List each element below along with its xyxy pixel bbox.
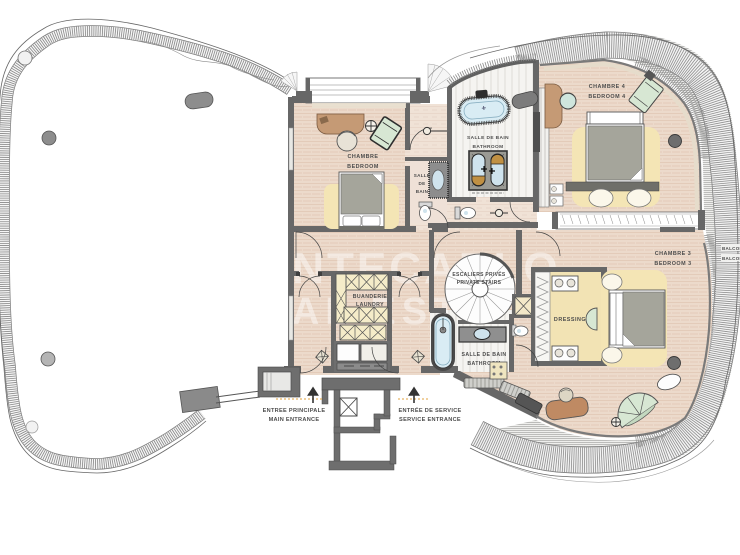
svg-text:ESCALIERS PRIVÉS: ESCALIERS PRIVÉS <box>452 270 506 278</box>
svg-text:BATHROOM: BATHROOM <box>472 144 503 150</box>
svg-text:BEDROOM 3: BEDROOM 3 <box>654 261 691 267</box>
svg-text:BALCONY: BALCONY <box>722 256 740 261</box>
svg-text:SALLE DE BAIN: SALLE DE BAIN <box>462 352 507 358</box>
svg-text:BUANDERIE: BUANDERIE <box>353 294 388 300</box>
svg-text:BEDROOM 4: BEDROOM 4 <box>588 94 625 100</box>
svg-text:CHAMBRE 3: CHAMBRE 3 <box>655 251 692 257</box>
svg-text:DE: DE <box>419 181 426 186</box>
svg-text:BEDROOM: BEDROOM <box>347 164 379 170</box>
svg-text:SALLE DE BAIN: SALLE DE BAIN <box>467 135 509 141</box>
svg-text:ENTRÉE DE SERVICE: ENTRÉE DE SERVICE <box>398 406 461 414</box>
svg-text:BAIN: BAIN <box>416 189 429 194</box>
svg-text:BALCON: BALCON <box>722 246 740 251</box>
svg-text:DRESSING: DRESSING <box>554 317 586 323</box>
svg-text:SERVICE ENTRANCE: SERVICE ENTRANCE <box>399 417 461 423</box>
svg-text:CHAMBRE: CHAMBRE <box>347 154 378 160</box>
svg-text:MAIN ENTRANCE: MAIN ENTRANCE <box>269 417 320 423</box>
svg-text:SALLE: SALLE <box>414 173 431 178</box>
svg-text:PRIVATE STAIRS: PRIVATE STAIRS <box>457 280 502 286</box>
svg-text:ENTREE PRINCIPALE: ENTREE PRINCIPALE <box>263 408 326 414</box>
svg-text:CHAMBRE 4: CHAMBRE 4 <box>589 84 626 90</box>
